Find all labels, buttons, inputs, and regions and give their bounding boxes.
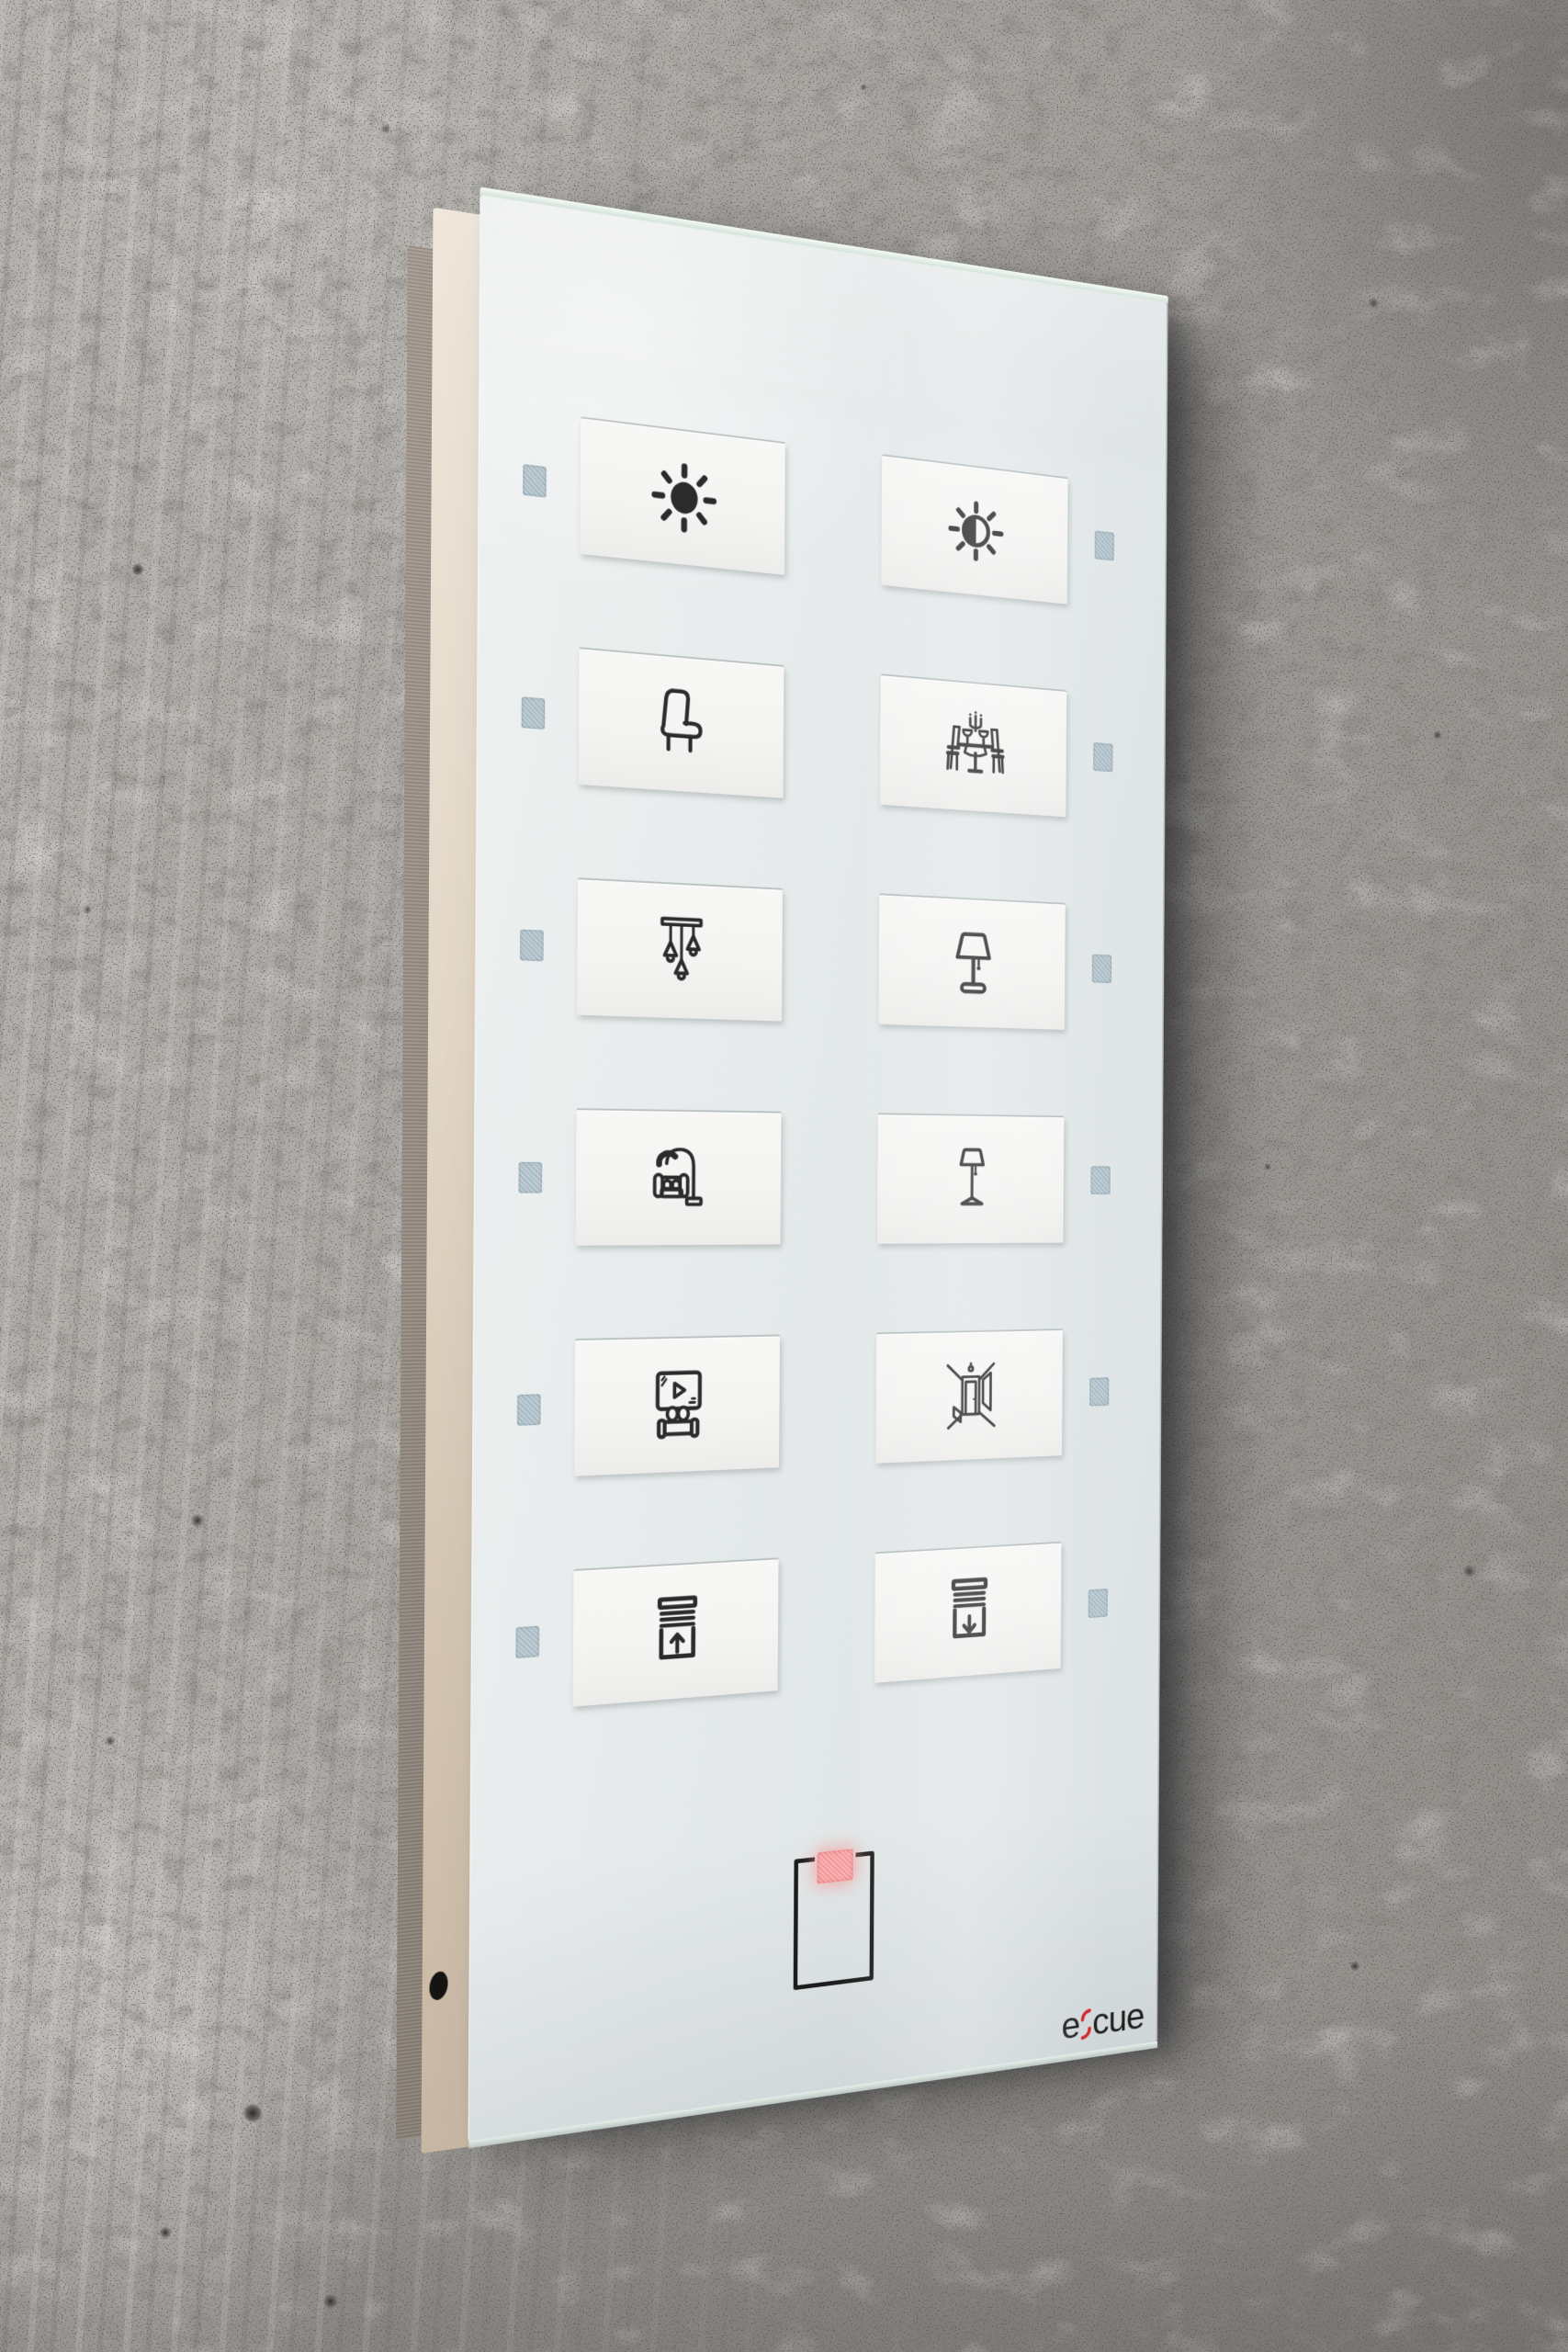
button-blinds-down[interactable] [874,1543,1062,1683]
card-reader-led [818,1849,853,1883]
armchair-icon [640,677,725,771]
button-armchair[interactable] [579,649,784,797]
status-led-hallway [1089,1377,1109,1406]
logo-colon-icon [1080,2007,1091,2041]
status-led-armchair [522,696,546,729]
button-table-lamp[interactable] [878,895,1065,1030]
logo-text-left: e [1061,2003,1079,2049]
button-lights-on[interactable] [580,418,785,575]
status-led-table-lamp [1092,955,1111,984]
blinds-up-icon [635,1586,719,1679]
button-media[interactable] [574,1336,780,1476]
glass-front: e cue [468,194,1168,2142]
logo-text-right: cue [1092,1994,1145,2044]
status-led-blinds-up [515,1626,539,1658]
touch-panel-assembly: e cue [468,194,1252,2146]
status-led-pendant [520,930,544,962]
tv-media-icon [636,1361,720,1451]
status-led-blinds-down [1089,1589,1108,1618]
button-pendant[interactable] [577,879,783,1021]
hallway-door-icon [932,1353,1010,1439]
button-blinds-up[interactable] [573,1559,779,1706]
button-grid [469,195,1168,2143]
sofa-reading-lamp-icon [637,1135,722,1223]
status-led-media [517,1394,541,1426]
blinds-down-icon [931,1568,1008,1657]
status-led-lights-on [523,464,547,498]
button-hallway[interactable] [875,1330,1062,1464]
table-lamp-icon [934,920,1011,1006]
sun-dim-icon [937,485,1014,577]
card-reader[interactable] [794,1851,874,1991]
button-lights-dim[interactable] [881,456,1067,604]
status-led-sofa-lamp [518,1162,542,1193]
sun-bright-icon [641,449,726,546]
dining-table-icon [936,703,1013,792]
pendant-lights-icon [638,906,723,997]
status-led-lights-dim [1095,530,1114,560]
button-floor-lamp[interactable] [877,1114,1064,1244]
floor-lamp-icon [933,1137,1010,1221]
button-dining[interactable] [880,675,1066,817]
status-led-floor-lamp [1090,1166,1110,1194]
side-screw-hole [428,1972,450,2000]
touch-panel: e cue [468,194,1168,2142]
status-led-dining [1093,742,1112,772]
button-sofa-lamp[interactable] [576,1110,782,1246]
